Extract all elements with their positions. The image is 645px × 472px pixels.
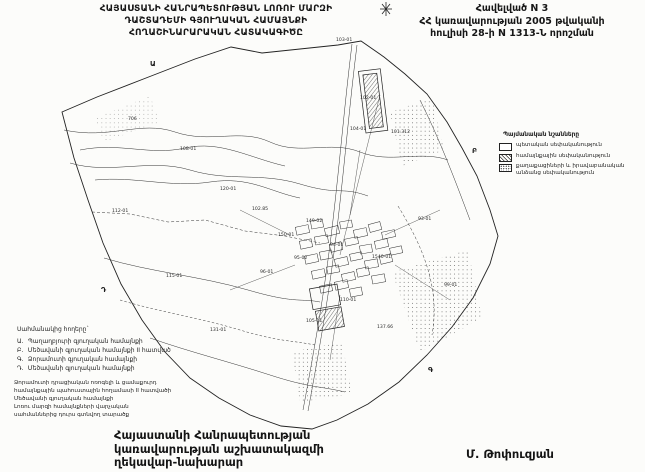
parcel-label: 1540-01 — [372, 254, 391, 260]
boundary-letter-label: Գ — [428, 366, 434, 374]
legend-item-label: պետական սեփականություն — [516, 142, 641, 149]
adjacent-land-item: Ա. Պաղաղբյուրի գյուղական համայնքի — [17, 337, 195, 346]
parcel-label: 93-01 — [418, 216, 431, 222]
adjacent-land-item: Բ. Մեծավանի գյուղական համայնքի II հատված — [17, 346, 195, 355]
legend-item: քաղաքացիների և իրավաբանական անձանց սեփակ… — [499, 163, 641, 177]
parcel-label: 102-01 — [360, 95, 376, 101]
appendix-line: ՀՀ կառավարության 2005 թվականի — [384, 16, 640, 29]
adjacent-land-label: Ձորամուտի գյուղական համայնքի — [28, 356, 137, 363]
office-title-line: ղեկավար-նախարար — [114, 456, 324, 470]
parcel-label: 120-01 — [220, 186, 236, 192]
note-line: սահմաններից դուրս գտնվող տարածք — [14, 411, 194, 419]
adjacent-lands-block: Սահմանակից հողերը` Ա. Պաղաղբյուրի գյուղա… — [17, 325, 195, 373]
notes-block: Ձորամուտի դրացիական ոռոգելի և ցամաքուրդ … — [14, 379, 194, 419]
parcel-label: 149-02 — [306, 218, 322, 224]
parcel-label: 137.66 — [377, 324, 393, 330]
note-line: Ձորամուտի դրացիական ոռոգելի և ցամաքուրդ — [14, 379, 194, 387]
note-line: Լոռու մարզի համայնքների վարչական — [14, 403, 194, 411]
appendix-line: հուլիսի 28-ի N 1313-Ն որոշման — [384, 28, 640, 41]
office-title: Հայաստանի Հանրապետության կառավարության ա… — [114, 429, 324, 470]
map-title: ՀԱՅԱՍՏԱՆԻ ՀԱՆՐԱՊԵՏՈՒԹՅԱՆ ԼՈՌՈՒ ՄԱՐԶԻ ԴԱՇ… — [62, 3, 370, 39]
adjacent-land-marker: Գ. — [17, 355, 26, 364]
adjacent-land-marker: Բ. — [17, 346, 26, 355]
legend-item-label: քաղաքացիների և իրավաբանական անձանց սեփակ… — [516, 163, 641, 177]
parcel-label: 110-01 — [340, 297, 356, 303]
legend-item: համայնքային սեփականություն — [499, 153, 641, 162]
adjacent-land-marker: Ա. — [17, 337, 26, 346]
adjacent-land-label: Մեծավանի գյուղական համայնքի — [28, 365, 135, 372]
legend-swatch-icon — [499, 143, 512, 151]
parcel-label: 105-01 — [306, 318, 322, 324]
adjacent-lands-title: Սահմանակից հողերը` — [17, 325, 195, 334]
note-line: համայնքային պահուստային հողամասի II հատվ… — [14, 387, 194, 395]
document-page: 103-01102-01104-01101.312706108-01112-01… — [0, 0, 645, 472]
office-title-line: Հայաստանի Հանրապետության — [114, 429, 324, 443]
legend-item-label: համայնքային սեփականություն — [516, 153, 641, 160]
note-line: Մեծավանի գյուղական համայնքի — [14, 395, 194, 403]
adjacent-land-label: Մեծավանի գյուղական համայնքի II հատված — [28, 347, 171, 354]
parcel-label: 99-01 — [444, 282, 457, 288]
parcel-label: 131-01 — [210, 327, 226, 333]
legend-swatch-icon — [499, 164, 512, 172]
map-title-line: ԴԱՇՏԱԴԵՄԻ ԳՅՈՒՂԱԿԱՆ ՀԱՄԱՅՆՔԻ — [62, 15, 370, 27]
map-title-line: ՀԱՅԱՍՏԱՆԻ ՀԱՆՐԱՊԵՏՈՒԹՅԱՆ ԼՈՌՈՒ ՄԱՐԶԻ — [62, 3, 370, 15]
legend-swatch-icon — [499, 154, 512, 162]
legend-item: պետական սեփականություն — [499, 142, 641, 151]
signature-name: Մ. Թոփուզյան — [466, 447, 554, 461]
adjacent-land-marker: Դ. — [17, 364, 26, 373]
parcel-label: 706 — [128, 116, 137, 122]
legend-title: Պայմանական նշանները — [503, 132, 641, 139]
boundary-letter-label: Ա — [150, 60, 156, 68]
adjacent-land-label: Պաղաղբյուրի գյուղական համայնքի — [28, 338, 143, 345]
boundary-letter-label: Բ — [472, 147, 477, 155]
parcel-label: 101.312 — [391, 129, 410, 135]
office-title-line: կառավարության աշխատակազմի — [114, 443, 324, 457]
adjacent-land-item: Գ. Ձորամուտի գյուղական համայնքի — [17, 355, 195, 364]
adjacent-land-item: Դ. Մեծավանի գյուղական համայնքի — [17, 364, 195, 373]
parcel-label: 94-01 — [330, 242, 343, 248]
parcel-label: 112-01 — [112, 208, 128, 214]
map-title-line: ՀՈՂԱՇԻՆԱՐԱՐԱԿԱՆ ՀԱՏԱԿԱԳԻԾԸ — [62, 27, 370, 39]
parcel-label: 115-01 — [166, 273, 182, 279]
parcel-label: 104-01 — [350, 126, 366, 132]
parcel-label: 150-01 — [278, 232, 294, 238]
parcel-label: 108-01 — [180, 146, 196, 152]
parcel-label: 102.85 — [252, 206, 268, 212]
parcel-label: 95-02 — [294, 255, 307, 261]
parcel-label: 96-01 — [260, 269, 273, 275]
appendix-reference: Հավելված N 3 ՀՀ կառավարության 2005 թվակա… — [384, 3, 640, 41]
boundary-letter-label: Դ — [101, 286, 107, 294]
hatched-area-bottom — [309, 284, 344, 331]
appendix-line: Հավելված N 3 — [384, 3, 640, 16]
legend-box: Պայմանական նշանները պետական սեփականությո… — [499, 132, 641, 179]
